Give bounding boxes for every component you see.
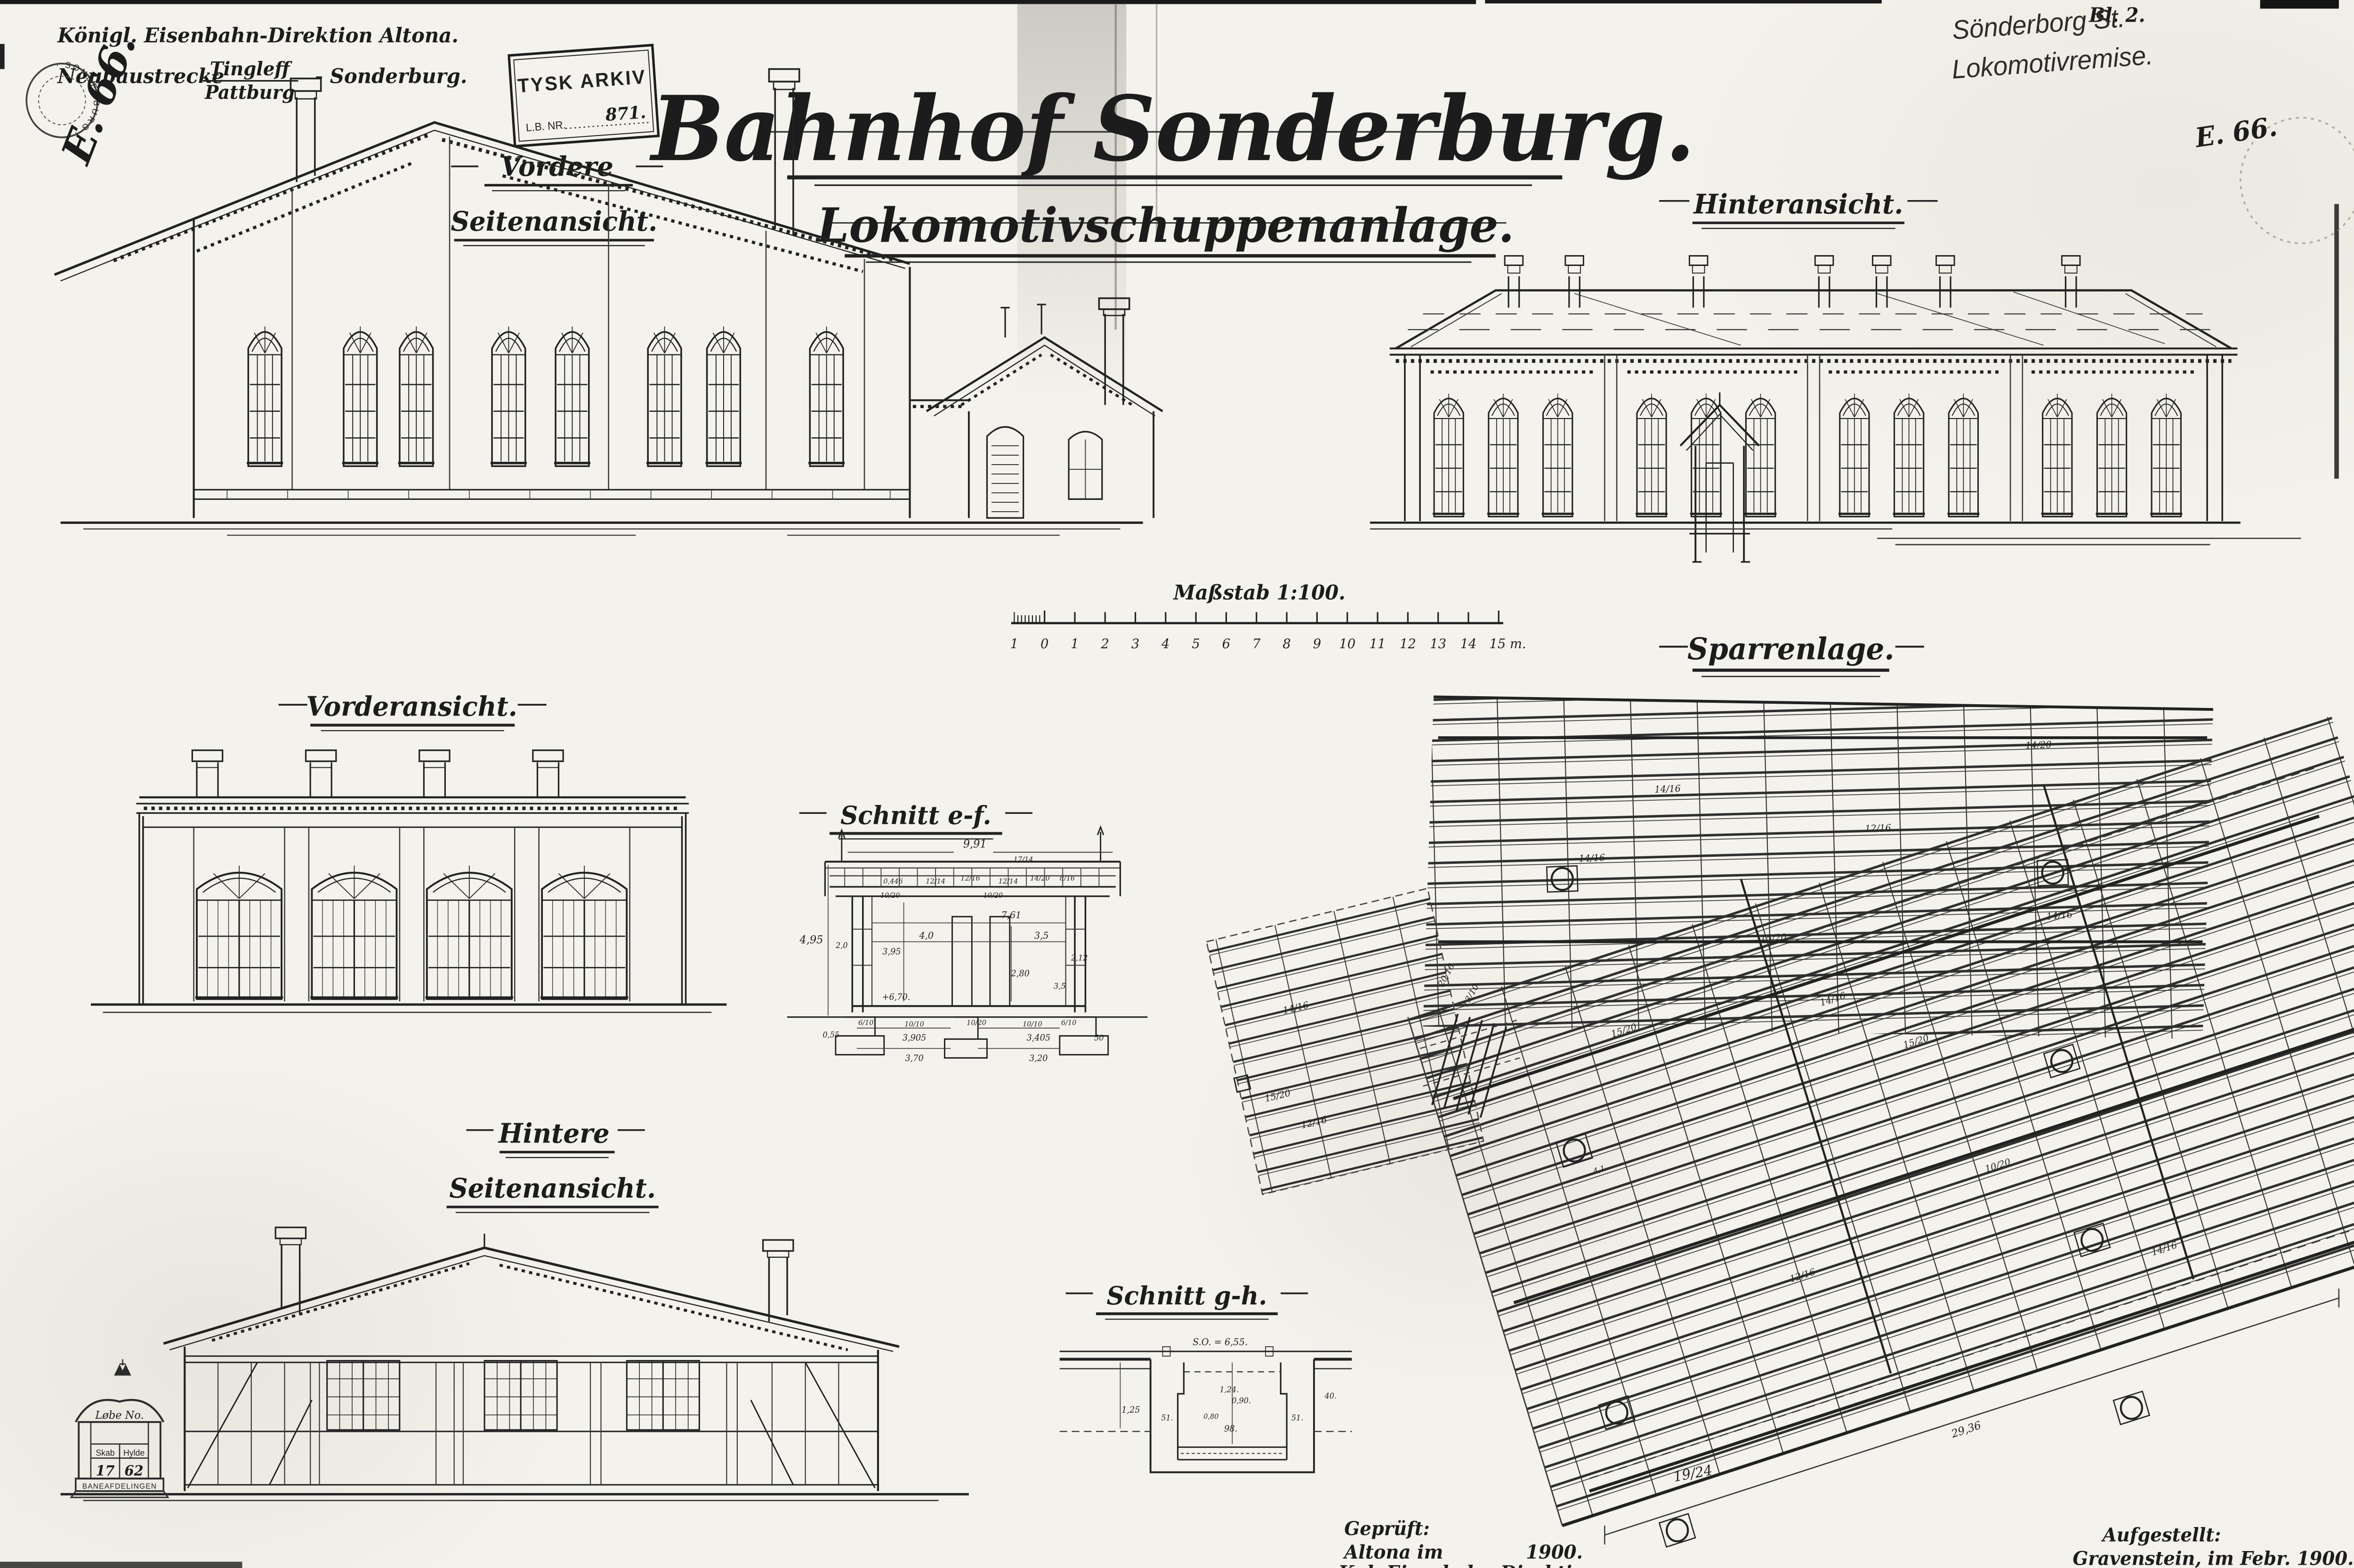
file-mark-right: E. 66.	[2193, 111, 2279, 154]
dim-label: 2,12	[1071, 953, 1088, 962]
drawing-sparrenlage: 14/16 14/20 12/16 14/16 15/20 14/16 15/2…	[1207, 697, 2354, 1547]
v6-caption-1: Hintere	[498, 1118, 610, 1149]
dim-label: 7,61	[1001, 909, 1021, 920]
route-suffix: - Sonderburg.	[315, 64, 468, 88]
label-schnitt-gh: Schnitt g-h.	[1066, 1281, 1308, 1319]
label-schnitt-ef: Schnitt e-f.	[799, 801, 1032, 839]
v1-caption-2: Seitenansicht.	[451, 206, 657, 237]
dim-label: 12/16	[960, 874, 980, 882]
archive-note-line1: Sönderborg St.	[1951, 3, 2126, 45]
drawing-vorderansicht	[91, 750, 726, 1013]
v2-caption: Hinteransicht.	[1693, 189, 1903, 220]
tick-label: 2	[1101, 636, 1109, 652]
tick-label: 14	[1460, 636, 1477, 652]
v3-caption: Vorderansicht.	[306, 692, 517, 723]
dim-label: 14/20	[1030, 874, 1050, 882]
drawing-sheet: Königl. Eisenbahn-Direktion Altona. Neub…	[0, 0, 2354, 1568]
dim-label: 9,91	[963, 838, 987, 850]
dim-label: 10/10	[904, 1020, 924, 1028]
dim-label: 4,0	[919, 930, 934, 941]
dim-label: 10/20	[984, 892, 1003, 900]
dim-label: 98.	[1224, 1424, 1237, 1434]
timber-mark: 14/16	[2046, 909, 2073, 922]
loebe-title: Løbe No.	[95, 1409, 144, 1422]
dim-label: 10/10	[1023, 1020, 1042, 1028]
loebe-stamp: Løbe No. Skab Hylde 17 62 BANEAFDELINGEN	[71, 1359, 168, 1497]
crown-icon	[115, 1359, 130, 1375]
dim-label: 10/20	[880, 892, 900, 900]
dim-label: 3,5	[1034, 930, 1049, 941]
checked-label: Geprüft:	[1344, 1518, 1430, 1540]
tick-label: 1	[1071, 636, 1079, 652]
label-sparrenlage: Sparrenlage.	[1659, 631, 1924, 676]
scale-label: Maßstab 1:100.	[1173, 581, 1346, 605]
tick-label: 13	[1430, 636, 1446, 652]
dim-label: 12/14	[926, 877, 945, 885]
loebe-val2: 62	[124, 1462, 143, 1479]
checked-place: Altona im	[1342, 1541, 1443, 1563]
dim-label: 3,905	[903, 1033, 927, 1043]
drawing-hinteransicht	[1370, 256, 2301, 562]
dim-label: S.O. = 6,55.	[1193, 1336, 1248, 1347]
tysk-arkiv-stamp: TYSK ARKIV L.B. NR. 871.	[509, 45, 659, 146]
drawing-hintere-seitenansicht	[61, 1227, 969, 1500]
timber-mark: 12/16	[1865, 822, 1891, 834]
archive-note-line2: Lokomotivremise.	[1951, 40, 2154, 84]
file-mark-left: E. 66.	[51, 26, 145, 171]
tysk-arkiv-label: TYSK ARKIV	[517, 65, 647, 97]
dim-label: 6/10	[1061, 1019, 1076, 1027]
route-top: Tingleff	[210, 58, 293, 80]
tick-label: 10	[1339, 636, 1355, 652]
loebe-footer: BANEAFDELINGEN	[82, 1482, 157, 1490]
drawing-schnitt-ef: 9,91 4,95 2,0 3,95 7,61 4,0 3,5 3,5 2,80…	[787, 827, 1147, 1063]
dim-label: 2,0	[835, 941, 848, 950]
drawing-canvas: Königl. Eisenbahn-Direktion Altona. Neub…	[0, 0, 2354, 1568]
tick-label: 4	[1161, 636, 1169, 652]
chimney	[290, 79, 321, 182]
v6-caption-2: Seitenansicht.	[449, 1173, 656, 1204]
dim-label: 2,80	[1011, 969, 1030, 979]
label-hintere-seitenansicht: Hintere Seitenansicht.	[447, 1118, 659, 1212]
dim-label: 3,5	[1054, 981, 1066, 990]
checked-org: Kgl. Eisenbahn-Direktion.	[1338, 1562, 1604, 1568]
tick-label: 11	[1370, 636, 1386, 652]
tick-label: 9	[1313, 636, 1321, 652]
tick-label: 15 m.	[1490, 636, 1526, 652]
dim-label: 3,405	[1026, 1033, 1050, 1043]
dim-label: +6,70.	[882, 992, 911, 1002]
timber-mark: 14/16	[1654, 783, 1681, 795]
dim-label: 0,80	[1203, 1413, 1218, 1421]
dim-label: 0,90.	[1232, 1396, 1251, 1405]
tick-label: 7	[1252, 636, 1261, 652]
dim-label: 51.	[1161, 1413, 1173, 1422]
dim-label: 17/14	[1014, 855, 1033, 863]
scale-bar: Maßstab 1:100. 1 0 1 2 3 4 5 6 7 8 9 10 …	[1010, 581, 1526, 651]
label-vorderansicht: Vorderansicht.	[279, 692, 547, 731]
chimney	[763, 1240, 793, 1321]
dim-label: 8/16	[1060, 874, 1075, 882]
tick-label: 8	[1282, 636, 1290, 652]
v5-caption: Sparrenlage.	[1687, 631, 1894, 666]
label-hinteransicht: Hinteransicht.	[1659, 189, 1938, 229]
timber-mark: 14/16	[1579, 852, 1605, 864]
dim-label: 6/10	[858, 1019, 873, 1027]
drawing-schnitt-gh: S.O. = 6,55. 1,24. 0,90. 0,80 98. 51. 51…	[1060, 1336, 1352, 1472]
tick-label: 6	[1222, 636, 1230, 652]
dim-label: 3,20	[1029, 1053, 1048, 1063]
checked-year: 1900.	[1526, 1541, 1583, 1563]
loebe-col2: Hylde	[123, 1448, 145, 1457]
tick-label: 3	[1131, 636, 1139, 652]
page-title: Bahnhof Sonderburg.	[649, 77, 1695, 182]
dim-label: 40.	[1324, 1391, 1337, 1400]
v7-caption: Schnitt g-h.	[1106, 1281, 1267, 1311]
tick-label: 12	[1400, 636, 1416, 652]
dim-label: 50	[1094, 1033, 1104, 1042]
tick-label: 5	[1192, 636, 1200, 652]
route-bottom: Pattburg	[204, 81, 295, 104]
timber-mark: 14/20	[2025, 739, 2052, 751]
v4-caption: Schnitt e-f.	[840, 801, 991, 830]
tysk-arkiv-number: 871.	[605, 102, 647, 125]
chimney-row	[1505, 256, 2080, 307]
chimney-row	[192, 750, 563, 797]
loebe-val1: 17	[96, 1462, 115, 1479]
loebe-col1: Skab	[96, 1448, 114, 1457]
tick-label: 0	[1040, 636, 1048, 652]
dim-label: 0,446	[883, 877, 903, 885]
dim-label: 3,95	[882, 947, 901, 957]
dim-label: 0,55	[822, 1030, 839, 1039]
dim-label: 10/20	[967, 1019, 986, 1027]
dim-label: 51.	[1291, 1413, 1304, 1422]
dim-label: 1,25	[1121, 1405, 1140, 1415]
dim-label: 4,95	[799, 934, 823, 946]
archive-note: Sönderborg St. Lokomotivremise.	[1948, 1, 2154, 84]
timber-mark: 15/20	[1760, 932, 1787, 944]
label-vordere-seitenansicht: Vordere Seitenansicht.	[451, 152, 663, 246]
chimney	[275, 1227, 306, 1313]
dim-label: 1,24.	[1219, 1385, 1239, 1394]
prepared-label: Aufgestellt:	[2101, 1524, 2221, 1546]
dim-label: 12/14	[999, 877, 1018, 885]
tick-label: 1	[1010, 636, 1018, 652]
prepared-place: Gravenstein, im Febr. 1900.	[2072, 1548, 2354, 1568]
footer-prepared: Aufgestellt: Gravenstein, im Febr. 1900.	[2072, 1524, 2354, 1568]
dim-label: 3,70	[905, 1053, 923, 1063]
title-block: Bahnhof Sonderburg. Lokomotivschuppenanl…	[649, 77, 1695, 262]
tysk-arkiv-lbnr: L.B. NR.	[525, 119, 566, 134]
page-subtitle: Lokomotivschuppenanlage.	[816, 198, 1515, 253]
